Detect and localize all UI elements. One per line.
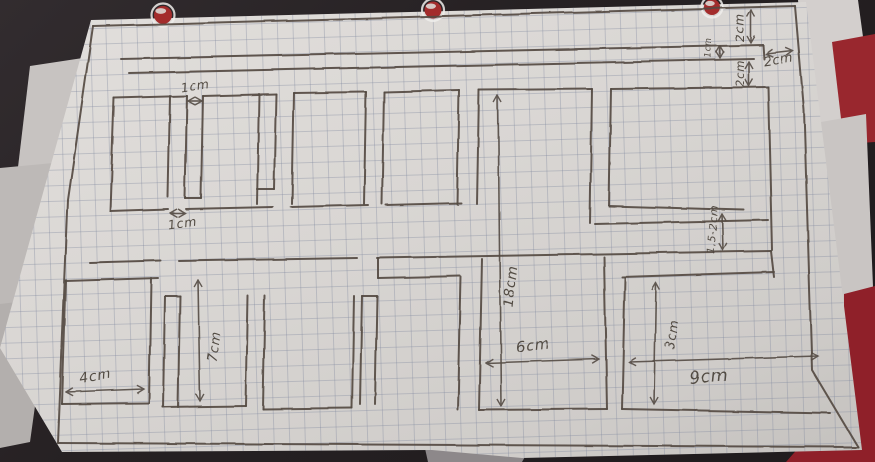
maze-wall-segment: [771, 251, 774, 277]
maze-wall-segment: [622, 277, 625, 409]
dimension-label: 1cm: [179, 76, 210, 95]
maze-wall-segment: [179, 258, 357, 261]
maze-wall-segment: [203, 94, 276, 96]
dimension-arrow: [498, 96, 501, 406]
maze-wall-segment: [458, 277, 461, 410]
maze-wall-segment: [121, 45, 763, 59]
maze-wall-segment: [257, 94, 259, 204]
maze-wall-segment: [595, 220, 768, 224]
maze-wall-segment: [201, 96, 203, 198]
dimension-label: 18cm: [501, 265, 521, 309]
dimension-label: 1cm: [166, 213, 197, 232]
maze-wall-segment: [168, 96, 170, 197]
maze-wall-segment: [795, 6, 858, 447]
photo-scene: 2cm1cm2cm2cm1cm1cm1,5-2cm18cm7cm3cm6cm9c…: [0, 0, 875, 462]
maze-wall-segment: [609, 89, 611, 206]
maze-wall-segment: [479, 259, 482, 410]
dimension-arrow: [722, 214, 723, 250]
maze-wall-segment: [110, 209, 168, 211]
maze-wall-segment: [246, 296, 248, 406]
hole-highlight: [705, 1, 715, 6]
maze-drawing: 2cm1cm2cm2cm1cm1cm1,5-2cm18cm7cm3cm6cm9c…: [0, 0, 875, 462]
maze-wall-segment: [129, 59, 754, 73]
maze-wall-segment: [291, 205, 368, 207]
maze-wall-segment: [622, 272, 774, 277]
maze-wall-segment: [292, 93, 294, 204]
maze-wall-segment: [163, 296, 165, 407]
maze-wall-segment: [768, 87, 772, 250]
maze-wall-segment: [360, 296, 362, 404]
dimension-arrow: [486, 359, 599, 363]
maze-wall-segment: [457, 90, 459, 204]
maze-wall-segment: [352, 296, 354, 408]
dimension-label: 3cm: [663, 318, 682, 350]
maze-wall-segment: [274, 94, 276, 189]
maze-wall-segment: [609, 206, 744, 210]
maze-wall-segment: [604, 257, 607, 409]
maze-wall-segment: [149, 278, 151, 403]
maze-wall-segment: [378, 276, 460, 278]
dimension-arrow: [66, 389, 144, 392]
maze-wall-segment: [114, 96, 187, 98]
dimension-label: 2cm: [733, 14, 747, 42]
maze-wall-segment: [477, 90, 479, 204]
maze-wall-segment: [178, 296, 180, 407]
dimension-label: 9cm: [689, 366, 730, 389]
dimension-label: 2cm: [762, 51, 794, 70]
hole-highlight: [155, 8, 166, 14]
maze-wall-segment: [62, 403, 149, 404]
maze-wall-segment: [384, 90, 459, 92]
maze-wall-segment: [263, 296, 265, 409]
dimension-arrow: [629, 356, 818, 362]
maze-wall-segment: [110, 98, 114, 211]
maze-wall-segment: [382, 92, 384, 204]
maze-wall-segment: [375, 296, 377, 404]
maze-wall-segment: [58, 443, 858, 447]
dimension-label: 1,5-2cm: [705, 205, 721, 255]
dimension-label: 2cm: [733, 60, 747, 87]
dimension-arrow: [654, 283, 656, 404]
maze-wall-segment: [479, 409, 607, 410]
maze-wall-segment: [163, 406, 246, 407]
dimension-label: 4cm: [78, 366, 113, 387]
dimension-label: 6cm: [515, 334, 552, 356]
maze-wall-segment: [590, 89, 592, 223]
maze-wall-segment: [66, 278, 158, 281]
maze-wall-segment: [185, 96, 187, 198]
maze-wall-segment: [386, 203, 461, 205]
maze-wall-segment: [364, 92, 366, 204]
maze-wall-segment: [479, 89, 592, 90]
dimension-label: 7cm: [205, 330, 224, 362]
hole-highlight: [426, 3, 436, 8]
maze-wall-segment: [263, 408, 352, 409]
maze-wall-segment: [294, 92, 366, 93]
dimension-label: 1cm: [704, 37, 714, 58]
maze-wall-segment: [622, 409, 830, 413]
dimension-arrow: [198, 280, 200, 401]
maze-wall-segment: [186, 207, 273, 209]
maze-wall-segment: [90, 261, 161, 263]
